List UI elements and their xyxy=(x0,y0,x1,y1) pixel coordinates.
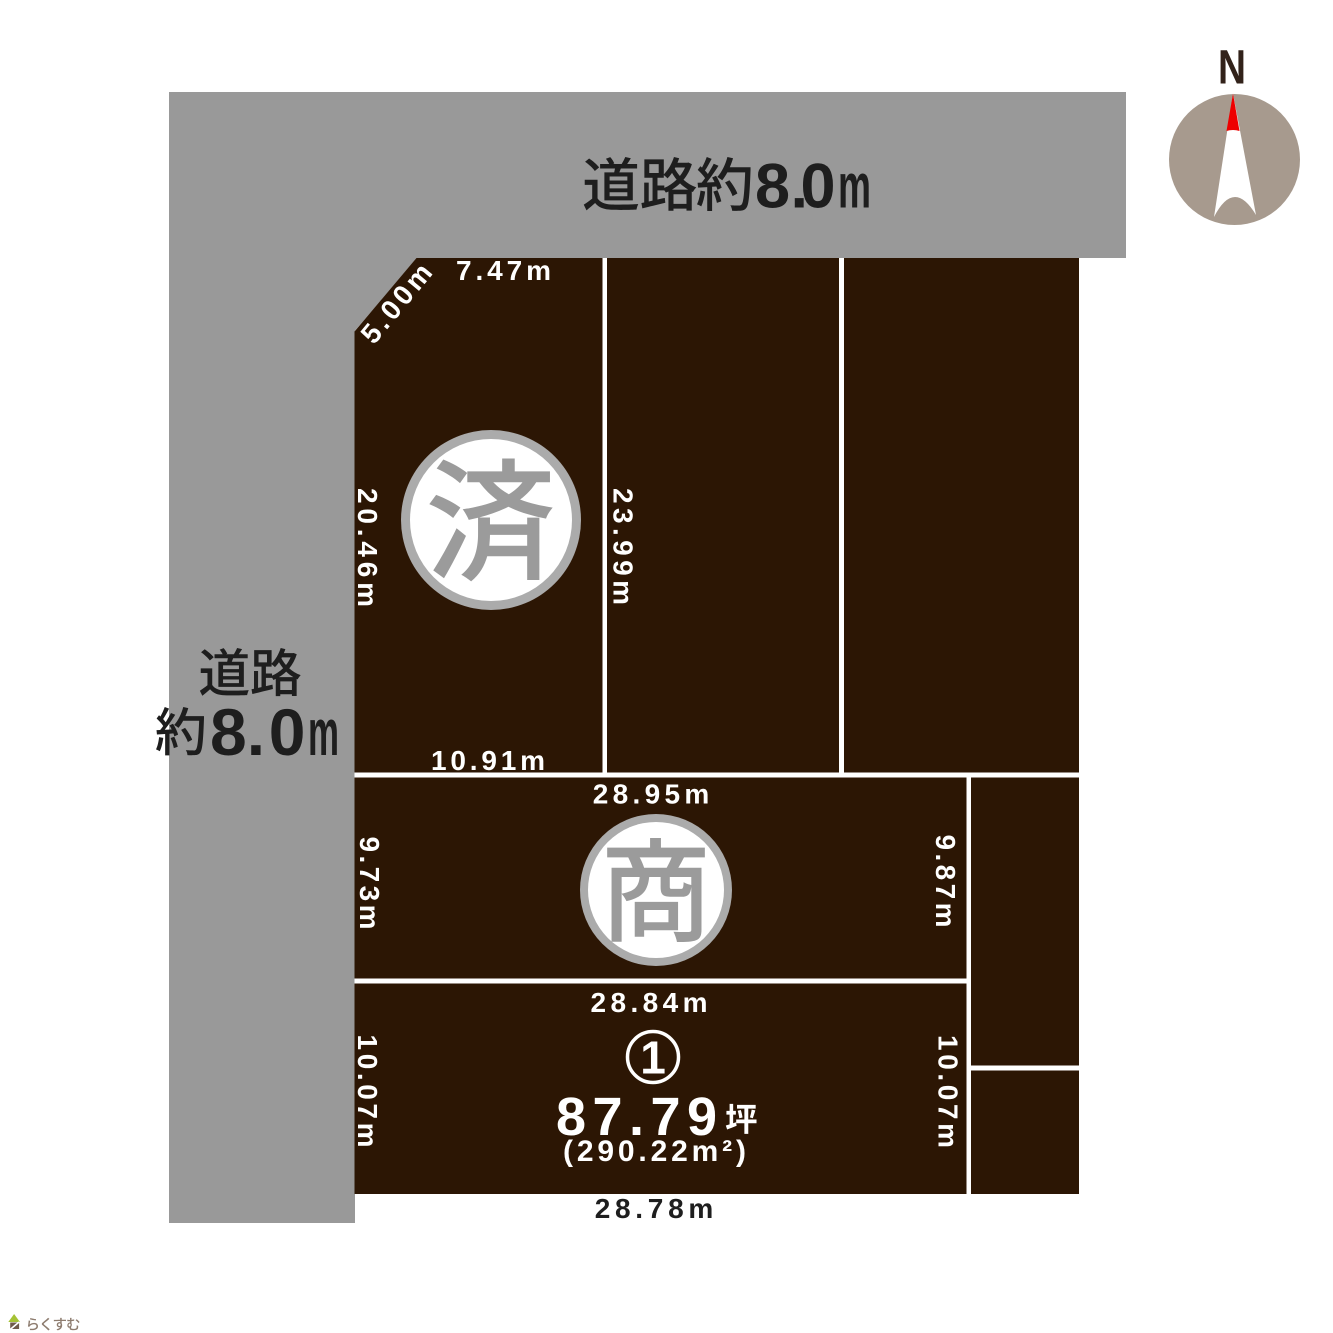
svg-text:N: N xyxy=(1218,42,1246,95)
svg-text:m: m xyxy=(308,695,339,769)
svg-text:28.78m: 28.78m xyxy=(595,1193,714,1224)
svg-text:8.0: 8.0 xyxy=(755,152,836,222)
svg-text:m: m xyxy=(838,152,871,222)
svg-text:8.0: 8.0 xyxy=(210,695,305,769)
svg-text:1: 1 xyxy=(640,1032,666,1084)
